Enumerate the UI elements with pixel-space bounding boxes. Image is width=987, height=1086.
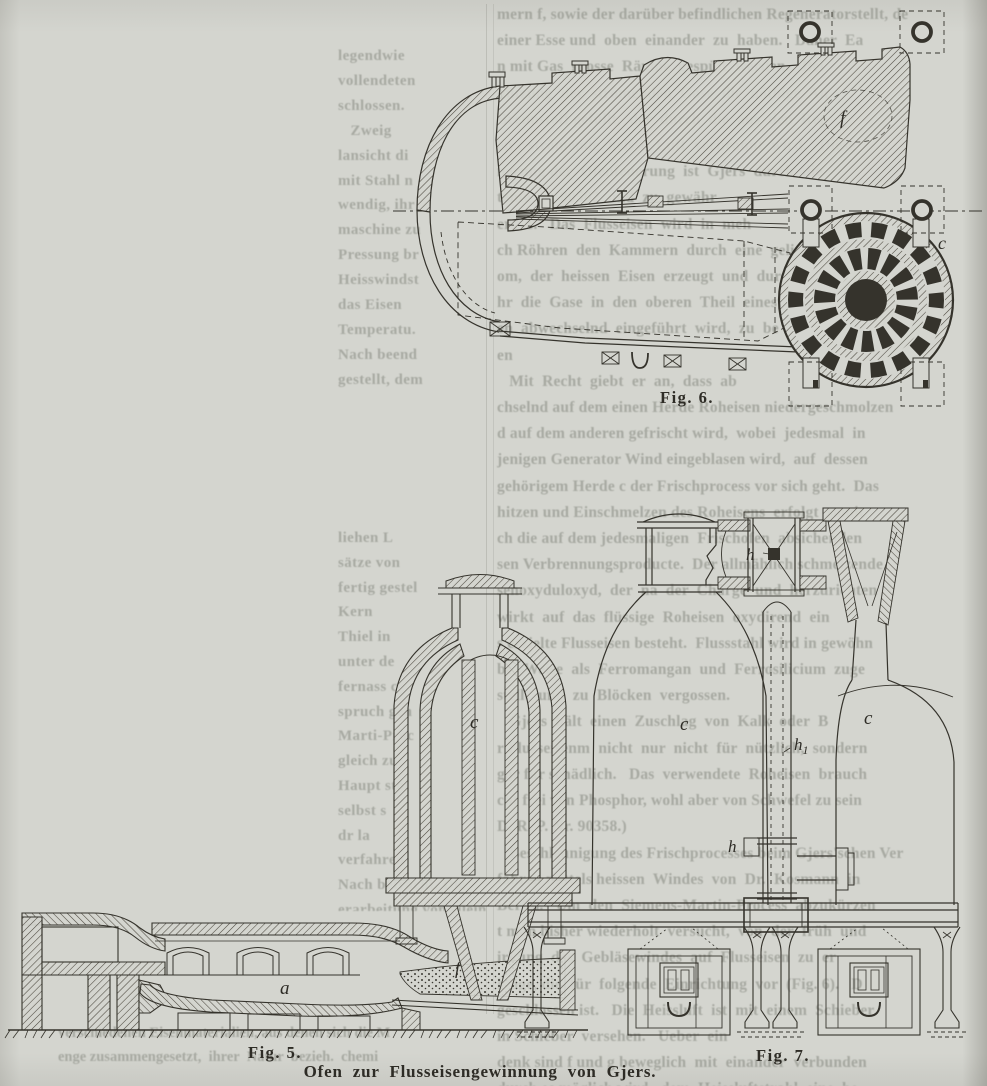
fig7-right-vessel [823, 508, 954, 905]
fig7-label-h1: h1 [794, 735, 809, 757]
fig7-left-vessel [592, 514, 768, 905]
fig5-caption: Fig. 5. [248, 1043, 302, 1063]
fig6-caption: Fig. 6. [660, 388, 714, 408]
fig7-platform [528, 898, 958, 932]
fig7-junction-valve-box [718, 512, 826, 596]
fig5-grass-ticks [5, 1030, 577, 1038]
figures-drawing: f [0, 0, 987, 1086]
fig7-right-pedestal [818, 928, 920, 1035]
fig7-label-h-junction: h [746, 545, 755, 564]
fig7-legs [517, 927, 967, 1037]
fig5-label-c: c [470, 712, 479, 733]
fig7-label-c-left: c [680, 714, 689, 735]
fig5-label-a: a [280, 978, 290, 999]
fig7-label-h-valve: h [728, 837, 737, 856]
fig7-caption: Fig. 7. [756, 1046, 810, 1066]
fig6-bottom-fittings [490, 322, 746, 370]
fig5-arched-ports [152, 948, 360, 976]
figure-5-hearth-furnace: a f [5, 913, 588, 1038]
figure-7-converter-vessels: c c h h h1 [517, 508, 967, 1037]
fig6-label-c: c [938, 233, 946, 253]
fig7-left-pedestal [628, 928, 730, 1035]
main-caption: Ofen zur Flusseisengewinnung von Gjers. [295, 1062, 665, 1082]
scanned-book-page: legendwievollendetenschlossen. Zweiglans… [0, 0, 987, 1086]
figure-5-cupola-vessel: c [386, 575, 580, 1001]
fig7-label-c-right: c [864, 708, 873, 729]
